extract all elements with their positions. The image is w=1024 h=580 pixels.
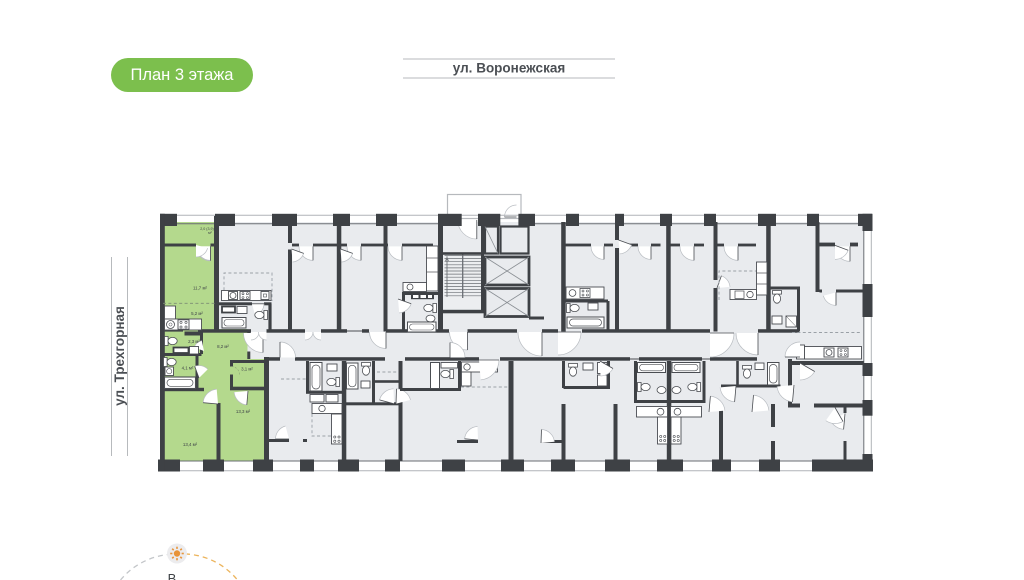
svg-text:13,4 м²: 13,4 м² [183,442,198,447]
svg-text:13,3 м²: 13,3 м² [236,409,251,414]
svg-text:8,2 м²: 8,2 м² [217,344,229,349]
svg-text:2,3 м²: 2,3 м² [188,339,200,344]
svg-text:4,1 м²: 4,1 м² [182,366,194,371]
svg-text:План 3 этажа: План 3 этажа [131,66,235,84]
svg-text:3,1 м²: 3,1 м² [241,367,253,372]
svg-text:5,2 м²: 5,2 м² [191,311,203,316]
svg-text:11,7 м²: 11,7 м² [193,286,207,291]
svg-text:В: В [168,571,177,580]
svg-text:ул. Трехгорная: ул. Трехгорная [112,306,127,406]
svg-text:ул. Воронежская: ул. Воронежская [453,61,565,76]
